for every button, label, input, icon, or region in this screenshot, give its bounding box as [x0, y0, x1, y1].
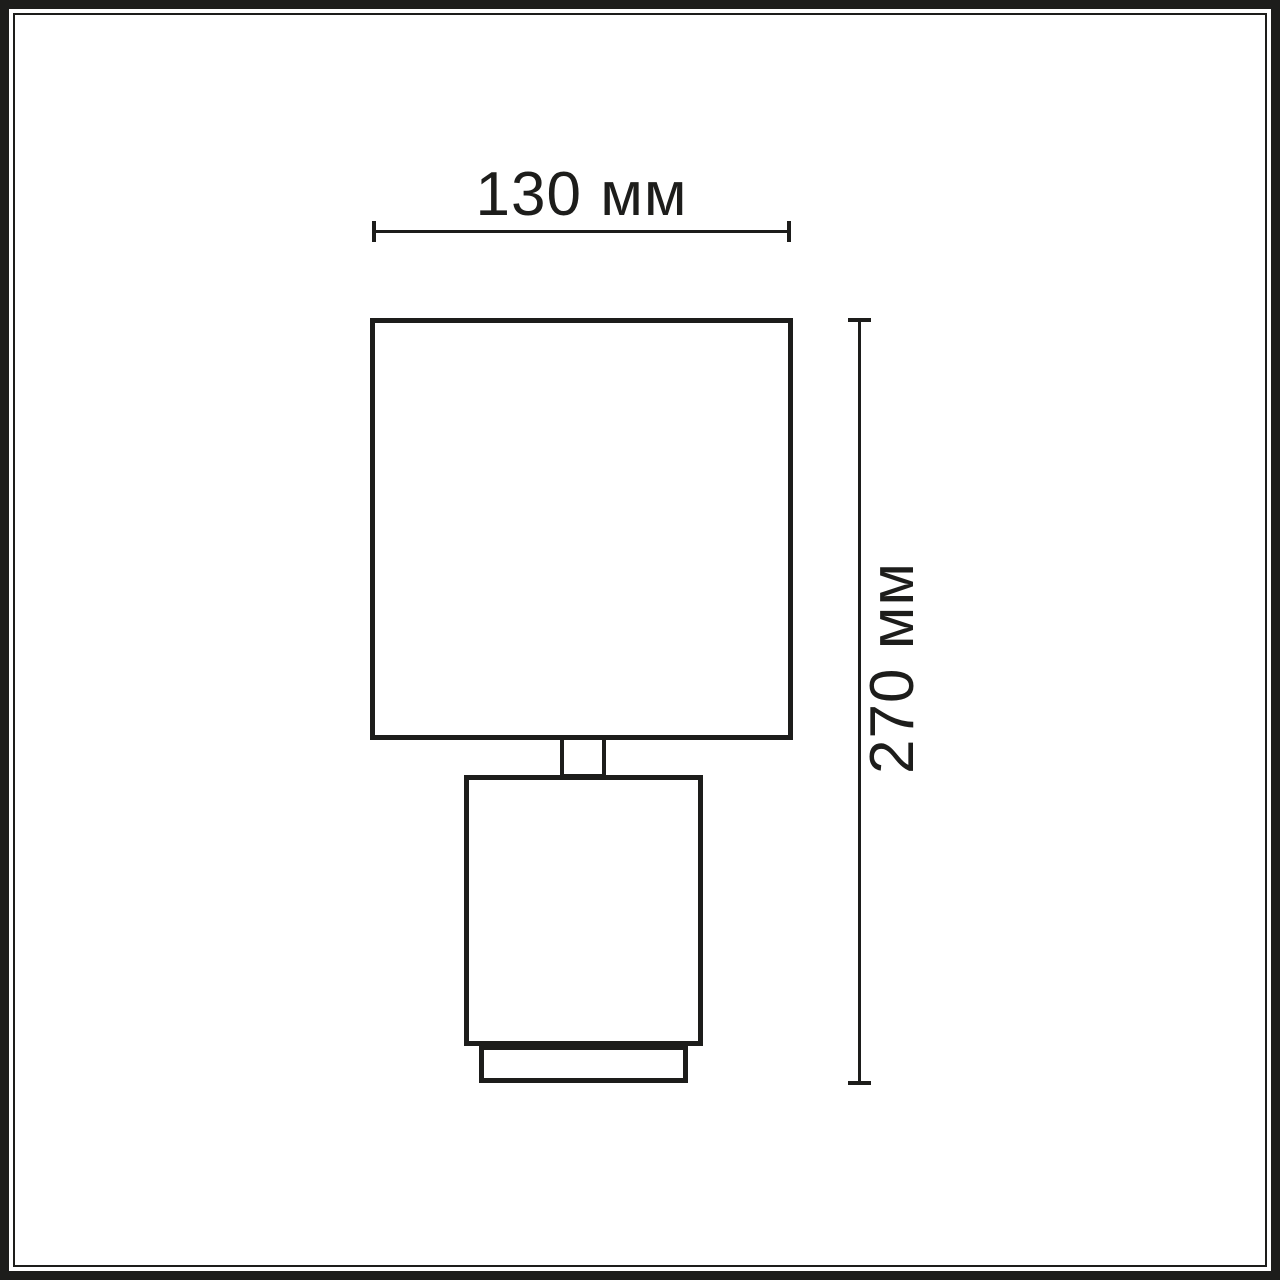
lamp-neck-outline [560, 736, 606, 778]
lamp-base-outline [464, 775, 703, 1046]
lamp-shade-outline [370, 318, 793, 740]
height-dimension-tick-top [848, 318, 871, 322]
width-dimension-line [373, 230, 790, 233]
drawing-canvas: 130 мм 270 мм [0, 0, 1280, 1280]
width-dimension-label: 130 мм [373, 164, 790, 226]
lamp-foot-outline [479, 1045, 688, 1083]
height-dimension-label: 270 мм [862, 562, 924, 774]
height-dimension-tick-bottom [848, 1081, 871, 1085]
